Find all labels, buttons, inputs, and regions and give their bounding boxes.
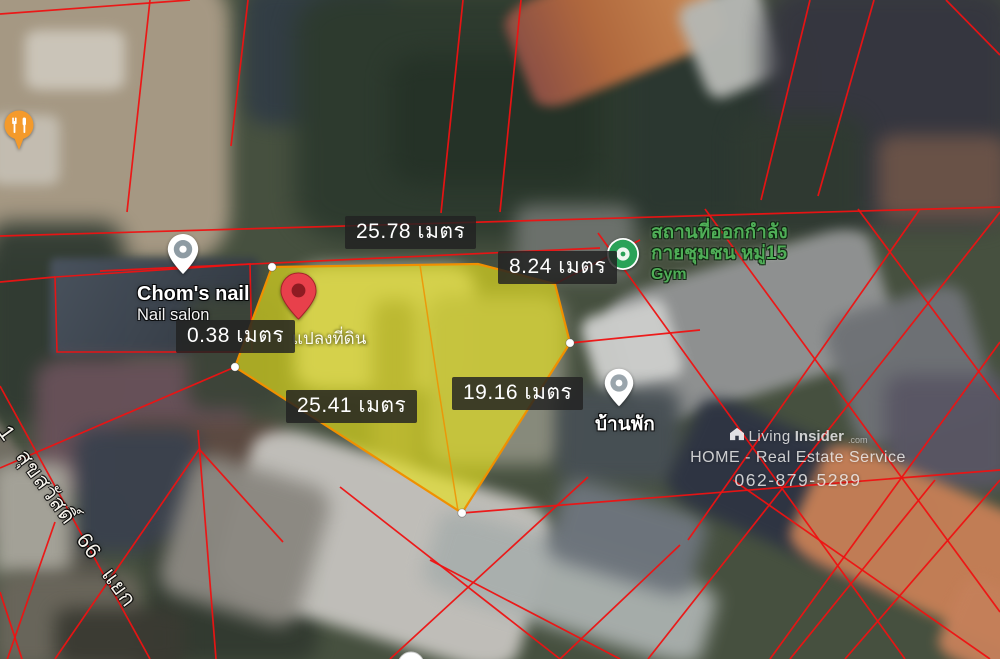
measurement-label-right-top: 8.24 เมตร	[498, 251, 617, 284]
choms-nail-pin-icon[interactable]	[167, 233, 199, 280]
watermark-brand-suffix: .com	[848, 435, 868, 445]
measurement-label-bottom-right: 19.16 เมตร	[452, 377, 583, 410]
watermark-house-icon	[729, 427, 745, 446]
watermark-tagline: HOME - Real Estate Service	[688, 449, 908, 467]
watermark-brand-prefix: Living	[749, 428, 791, 445]
choms-nail-label[interactable]: Chom's nail Nail salon	[137, 283, 250, 325]
location-pin-icon[interactable]	[280, 272, 317, 325]
watermark-phone: 062-879-5289	[688, 470, 908, 491]
restaurant-icon[interactable]	[2, 110, 36, 157]
gym-label[interactable]: สถานที่ออกกำลัง กายชุมชน หมู่15 Gym	[651, 222, 788, 285]
measurement-label-bottom-left: 25.41 เมตร	[286, 390, 417, 423]
banpak-pin-icon[interactable]	[604, 368, 634, 412]
measurement-label-left: 0.38 เมตร	[176, 320, 295, 353]
satellite-background	[0, 0, 1000, 659]
watermark-brand-bold: Insider	[795, 428, 844, 445]
watermark: LivingInsider.com HOME - Real Estate Ser…	[688, 427, 908, 491]
banpak-label[interactable]: บ้านพัก	[595, 409, 655, 439]
map-viewport[interactable]: แยก 1 สุขสวัสดิ์ 66 แยก แปลงที่ดิน Chom'…	[0, 0, 1000, 659]
measurement-label-top: 25.78 เมตร	[345, 216, 476, 249]
plot-label: แปลงที่ดิน	[292, 325, 366, 352]
